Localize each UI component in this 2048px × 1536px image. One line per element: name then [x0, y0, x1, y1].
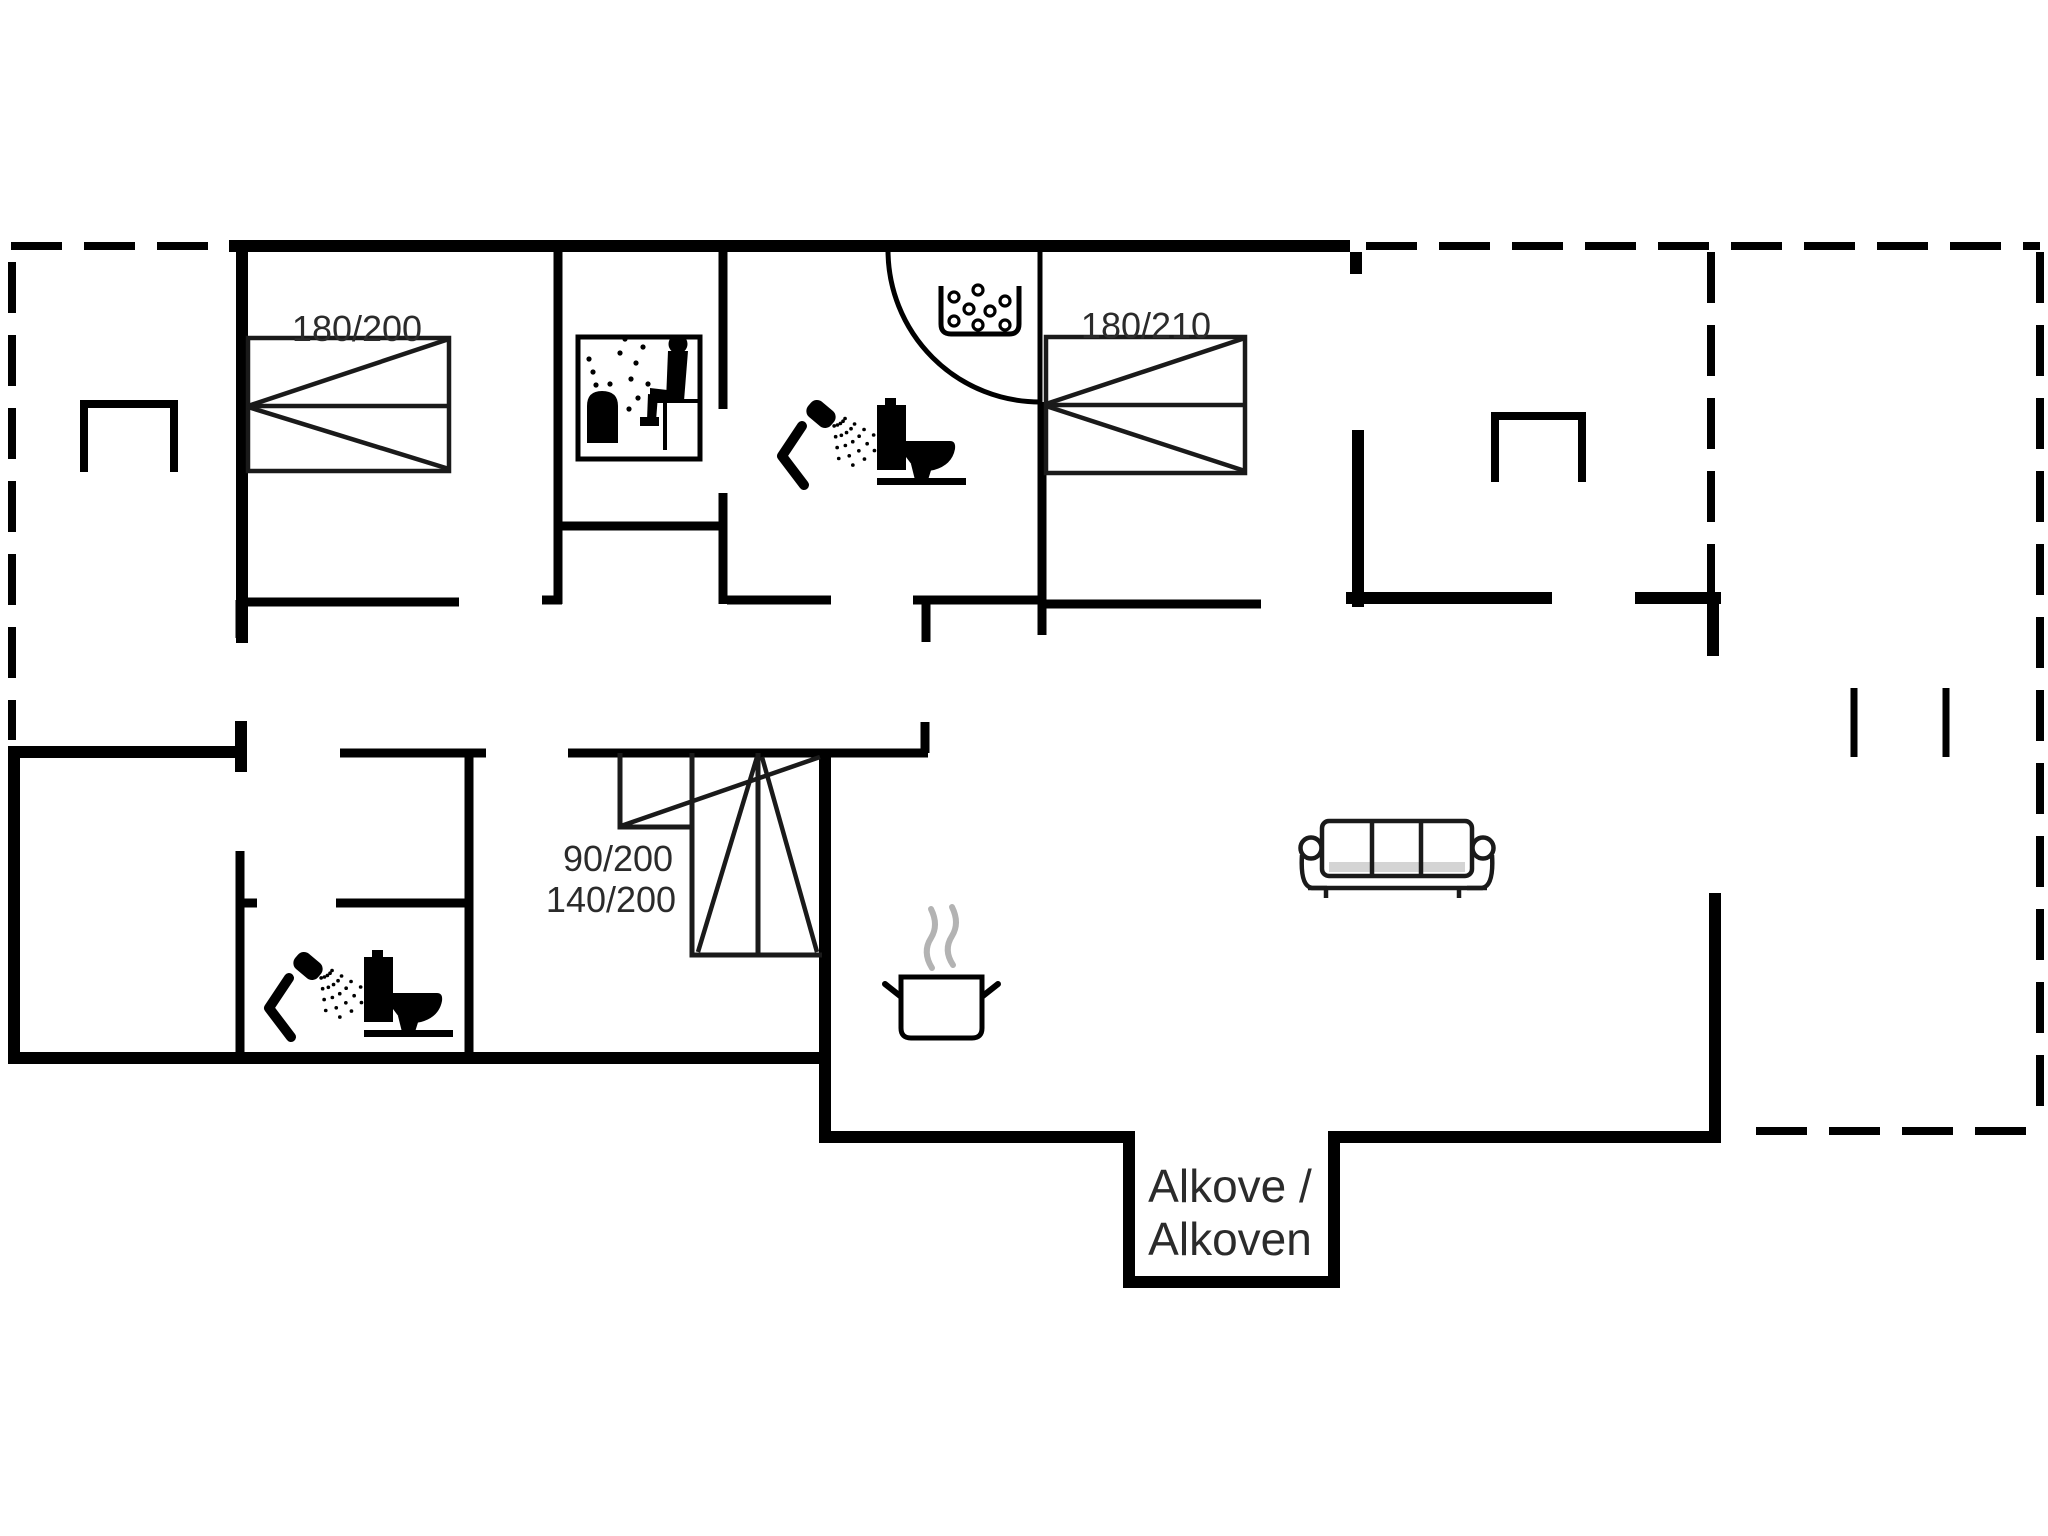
svg-text:90/200: 90/200 [563, 838, 673, 879]
svg-text:Alkove /: Alkove / [1148, 1160, 1312, 1212]
svg-text:Alkoven: Alkoven [1148, 1213, 1312, 1265]
svg-text:180/210: 180/210 [1081, 305, 1211, 346]
svg-text:180/200: 180/200 [292, 308, 422, 349]
svg-text:140/200: 140/200 [546, 879, 676, 920]
